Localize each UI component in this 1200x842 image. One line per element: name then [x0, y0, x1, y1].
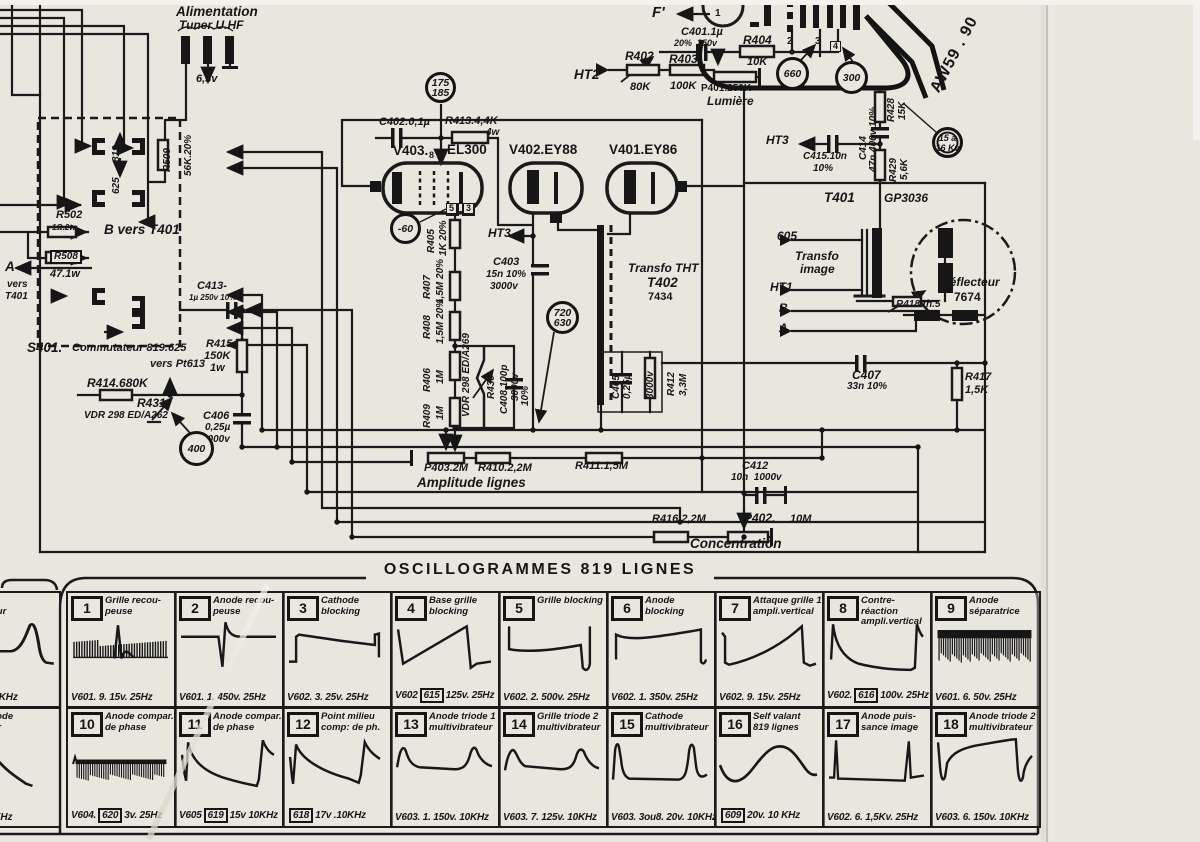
schematic-label: R431: [137, 397, 166, 409]
waveform-trace: [610, 616, 711, 674]
schematic-label: 3000v: [490, 282, 518, 292]
schematic-label: S401.: [27, 341, 62, 355]
schematic-label: 6,3v: [196, 74, 217, 85]
cell-title: Self valant819 lignes: [753, 712, 801, 733]
waveform-trace: [502, 616, 603, 674]
oscillogram-cell: 14Grille triode 2multivibrateurV603. 7. …: [498, 707, 609, 828]
value-circle: 15 à16 Kv: [932, 127, 963, 158]
schematic-vertical-label: R429: [889, 158, 899, 182]
waveform-trace: [826, 732, 927, 790]
schematic-vertical-label: VDR 298 ED/A269: [462, 333, 472, 417]
schematic-label: P401.250K: [701, 84, 751, 94]
schematic-label: F': [652, 5, 665, 20]
schematic-vertical-label: R406: [423, 368, 433, 392]
schematic-label: R402: [625, 50, 654, 62]
schematic-label: HT3: [766, 134, 789, 146]
schematic-vertical-label: R430: [487, 375, 497, 399]
schematic-label: R415: [206, 339, 232, 350]
oscillogram-cell: 8Contre-réactionampli.verticalV602.61610…: [822, 591, 933, 708]
caption-box-number: 616: [854, 688, 878, 703]
schematic-vertical-label: 1,5M 20%: [436, 259, 446, 304]
schematic-label: 20% 250v: [674, 39, 717, 48]
schematic-label: Lumière: [707, 95, 754, 107]
schematic-label: C407: [852, 369, 881, 381]
oscillogram-cell: 6Anode blockingV602. 1. 350v. 25Hz: [606, 591, 717, 708]
schematic-label: T401: [824, 191, 855, 205]
schematic-label: C402.0,1µ: [379, 117, 430, 128]
waveform-trace: [718, 616, 819, 674]
schematic-label: 2: [787, 37, 793, 47]
schematic-label: vers Pt613: [150, 359, 205, 370]
schematic-label: Déflecteur: [941, 276, 1000, 288]
schematic-label: C413-: [197, 281, 227, 292]
schematic-vertical-label: 3000v: [646, 371, 656, 399]
waveform-trace: [394, 616, 495, 674]
schematic-label: B: [779, 302, 788, 314]
schematic-label: R403: [669, 53, 698, 65]
schematic-label: R416.2,2M: [652, 514, 706, 525]
oscillogram-cell: 3CathodeblockingV602. 3. 25v. 25Hz: [282, 591, 393, 708]
cell-title: sion anodeparateur: [0, 712, 13, 733]
schematic-label: 1: [715, 9, 721, 19]
cell-caption: 22v. 10KHz: [0, 812, 12, 823]
schematic-label: 47.1w: [50, 269, 80, 280]
schematic-vertical-label: 1M: [436, 406, 446, 420]
schematic-label: 33n 10%: [847, 382, 887, 392]
waveform-trace: [826, 616, 927, 674]
schematic-label: Transfo: [795, 250, 839, 262]
schematic-label: R404: [743, 34, 772, 46]
caption-box-number: 620: [98, 808, 122, 823]
schematic-label: EL300: [447, 143, 487, 157]
cell-title: Cathodemultivibrateur: [645, 712, 708, 733]
schematic-label: T401: [5, 292, 28, 302]
cell-caption: V602. 9. 15v. 25Hz: [719, 692, 800, 703]
schematic-label: 10n 1000v: [731, 473, 782, 483]
schematic-label: T402: [647, 276, 678, 290]
oscillogram-cell: 11Anode compar.de phaseV60561915v 10KHz: [174, 707, 285, 828]
schematic-vertical-label: 625: [112, 177, 122, 194]
schematic-label: R502: [56, 210, 82, 221]
value-circle: 175185: [425, 72, 456, 103]
schematic-vertical-label: 5,6K: [900, 159, 910, 180]
schematic-vertical-label: 10%: [521, 386, 531, 406]
schematic-label: C401.1µ: [681, 27, 723, 38]
schematic-label: vers: [7, 280, 28, 290]
cell-title: Cathodeblocking: [321, 596, 360, 617]
schematic-label: 10%: [813, 164, 833, 174]
schematic-label: R414.680K: [87, 377, 148, 389]
waveform-trace: [70, 616, 171, 674]
oscillogram-cell: 2Anode recou-peuseV601. 1. 450v. 25Hz: [174, 591, 285, 708]
schematic-vertical-label: R409: [423, 404, 433, 428]
paper-tear-top: [0, 0, 1200, 5]
waveform-trace: [0, 616, 55, 674]
schematic-label: 0,25µ: [205, 423, 230, 433]
schematic-label: P403.2M: [424, 463, 468, 474]
schematic-label: Concentration: [690, 537, 782, 551]
cell-title: Anode recou-peuse: [213, 596, 274, 617]
cell-title: Grille blocking: [537, 596, 603, 607]
schematic-vertical-label: 1M: [436, 370, 446, 384]
schematic-vertical-label: 0,25µ: [623, 374, 633, 399]
schematic-label: 1Ω.2w: [52, 224, 76, 232]
schematic-label: 1µ 250v 10%: [189, 294, 236, 302]
oscillogram-cell: 5Grille blockingV602. 2. 500v. 25Hz: [498, 591, 609, 708]
waveform-trace: [610, 732, 711, 790]
schematic-label: R418 th.5: [896, 300, 940, 310]
oscillogram-cell: 17Anode puis-sance imageV602. 6. 1,5Kv. …: [822, 707, 933, 828]
schematic-label: C406: [203, 411, 229, 422]
schematic-vertical-label: C405: [612, 375, 622, 399]
schematic-label: 80K: [630, 82, 650, 93]
schematic-vertical-label: R428: [887, 98, 897, 122]
cell-title: Grille recou-peuse: [105, 596, 161, 617]
waveform-trace: [70, 732, 171, 790]
value-circle: 720630: [546, 301, 579, 334]
cell-title: Grille triode 2multivibrateur: [537, 712, 600, 733]
schematic-label: Tuner U.HF: [179, 19, 243, 31]
schematic-label: P402.: [744, 512, 775, 524]
caption-box-number: 615: [420, 688, 444, 703]
schematic-label: image: [800, 263, 835, 275]
waveform-trace: [286, 732, 387, 790]
schematic-vertical-label: R408: [423, 315, 433, 339]
cell-caption: V602. 6. 1,5Kv. 25Hz: [827, 812, 918, 823]
schematic-label: C412: [742, 461, 768, 472]
paper-tear-right: [1193, 0, 1200, 140]
schematic-label: Alimentation: [176, 5, 258, 19]
schematic-label: VDR 298 ED/A262: [84, 411, 168, 421]
value-circle: 400: [179, 431, 214, 466]
oscillogram-cell: 18Anode triode 2multivibrateurV603. 6. 1…: [930, 707, 1041, 828]
schematic-vertical-label: R405: [427, 229, 437, 253]
oscillogram-cell: 12Point milieucomp: de ph.61817v .10KHz: [282, 707, 393, 828]
schematic-label: V401.EY86: [609, 143, 677, 157]
schematic-scan: AlimentationTuner U.HF6,3vR5021Ω.2wB ver…: [0, 0, 1200, 842]
schematic-vertical-label: 3,3M: [679, 374, 689, 396]
schematic-label: 4w: [486, 128, 499, 138]
caption-box-number: 619: [204, 808, 228, 823]
waveform-trace: [394, 732, 495, 790]
schematic-label: 3: [815, 37, 821, 47]
schematic-vertical-label: R412: [667, 372, 677, 396]
schematic-label: Amplitude lignes: [417, 476, 526, 490]
schematic-label: 4: [830, 41, 841, 52]
schematic-label: HT3: [488, 227, 511, 239]
schematic-label: 5: [446, 203, 457, 214]
cell-caption: V60561915v 10KHz: [179, 808, 278, 823]
cell-caption: 8.17v.10KHz: [0, 692, 18, 703]
cell-caption: V603. 7. 125v. 10KHz: [503, 812, 597, 823]
cell-caption: 61817v .10KHz: [287, 808, 366, 823]
cell-title: Anode compar.de phase: [105, 712, 174, 733]
schematic-vertical-label: 56K.20%: [184, 135, 194, 176]
cell-caption: V603. 6. 150v. 10KHz: [935, 812, 1029, 823]
oscillogram-cell: 13Anode triode 1multivibrateurV603. 1. 1…: [390, 707, 501, 828]
cell-caption: V601. 9. 15v. 25Hz: [71, 692, 152, 703]
schematic-label: V403.: [393, 144, 428, 158]
schematic-label: 1,5K: [965, 385, 988, 396]
oscillogram-cell: sion anodeparateur22v. 10KHz: [0, 707, 61, 828]
schematic-vertical-label: 1K 20%: [439, 220, 449, 256]
waveform-trace: [718, 732, 819, 790]
caption-box-number: 618: [289, 808, 313, 823]
waveform-trace: [286, 616, 387, 674]
schematic-label: C415.10n: [803, 152, 847, 162]
schematic-label: 1w: [210, 363, 225, 374]
schematic-label: 15n 10%: [486, 270, 526, 280]
schematic-label: 7434: [648, 292, 672, 303]
waveform-trace: [502, 732, 603, 790]
schematic-label: R417: [965, 372, 991, 383]
schematic-label: V402.EY88: [509, 143, 577, 157]
cell-caption: V602. 1. 350v. 25Hz: [611, 692, 698, 703]
schematic-vertical-label: R509: [163, 148, 173, 172]
cell-caption: V602. 3. 25v. 25Hz: [287, 692, 368, 703]
cell-title: Anode compar.de phase: [213, 712, 282, 733]
schematic-label: 605: [777, 230, 797, 242]
schematic-label: R410.2,2M: [478, 463, 532, 474]
waveform-trace: [934, 732, 1035, 790]
schematic-label: 150K: [204, 351, 230, 362]
cell-title: Anode triode 2multivibrateur: [969, 712, 1036, 733]
cell-title: Base grilleblocking: [429, 596, 477, 617]
cell-caption: V602. 2. 500v. 25Hz: [503, 692, 590, 703]
schematic-label: GP3036: [884, 192, 928, 204]
cell-caption: V604.6203v. 25Hz: [71, 808, 162, 823]
cell-title: hodeivibrateur: [0, 596, 6, 617]
cell-caption: V601. 6. 50v. 25Hz: [935, 692, 1016, 703]
oscillogram-cell: 15CathodemultivibrateurV603. 3ou8. 20v. …: [606, 707, 717, 828]
cell-title: Anode blocking: [645, 596, 715, 617]
cell-caption: V601. 1. 450v. 25Hz: [179, 692, 266, 703]
schematic-label: 8: [429, 151, 434, 160]
value-circle: 660: [776, 57, 809, 90]
cell-title: Anodeséparatrice: [969, 596, 1020, 617]
cell-title: Point milieucomp: de ph.: [321, 712, 380, 733]
cell-caption: V602.616100v. 25Hz: [827, 688, 929, 703]
schematic-label: 100K: [670, 81, 696, 92]
oscillograms-title: OSCILLOGRAMMES 819 LIGNES: [330, 561, 750, 579]
oscillogram-cell: 1Grille recou-peuseV601. 9. 15v. 25Hz: [66, 591, 177, 708]
schematic-label: 7674: [954, 291, 981, 303]
schematic-vertical-label: R407: [423, 275, 433, 299]
value-circle: 300: [835, 61, 868, 94]
schematic-label: 10M: [790, 514, 811, 525]
oscillogram-cell: 4Base grilleblockingV602615125v. 25Hz: [390, 591, 501, 708]
schematic-label: A: [5, 260, 15, 274]
schematic-label: 3: [463, 203, 474, 214]
schematic-vertical-label: C408.100p: [500, 365, 510, 414]
schematic-label: 10K: [747, 57, 767, 68]
schematic-label: C403: [493, 257, 519, 268]
cell-caption: 60920v. 10 KHz: [719, 808, 800, 823]
waveform-trace: [934, 616, 1035, 674]
schematic-label: Transfo THT: [628, 262, 698, 274]
schematic-label: A: [779, 322, 788, 334]
schematic-label: Commutateur 819.625: [72, 343, 186, 354]
schematic-vertical-label: 1,5M 20%: [436, 299, 446, 344]
caption-box-number: 609: [721, 808, 745, 823]
schematic-label: R508: [50, 250, 82, 264]
cell-caption: V602615125v. 25Hz: [395, 688, 494, 703]
cell-caption: V603. 1. 150v. 10KHz: [395, 812, 489, 823]
schematic-vertical-label: 47n 400v 10%: [869, 107, 879, 172]
cell-title: Attaque grille 1ampli.vertical: [753, 596, 822, 617]
oscillogram-cell: 16Self valant819 lignes60920v. 10 KHz: [714, 707, 825, 828]
cell-title: Anode puis-sance image: [861, 712, 918, 733]
schematic-label: B vers T401: [104, 223, 180, 237]
schematic-label: R413.4,4K: [445, 116, 498, 127]
schematic-label: HT2: [574, 68, 600, 82]
value-circle: -60: [390, 213, 421, 244]
oscillogram-cell: 9AnodeséparatriceV601. 6. 50v. 25Hz: [930, 591, 1041, 708]
schematic-label: HT1: [770, 281, 793, 293]
schematic-label: R411.1,5M: [575, 461, 628, 472]
schematic-vertical-label: 819: [112, 145, 122, 162]
paper-fold-line: [1046, 0, 1048, 842]
oscillogram-cell: 7Attaque grille 1ampli.verticalV602. 9. …: [714, 591, 825, 708]
cell-caption: V603. 3ou8. 20v. 10KHz: [611, 812, 717, 823]
cell-title: Anode triode 1multivibrateur: [429, 712, 496, 733]
waveform-trace: [0, 732, 55, 790]
oscillogram-cell: hodeivibrateur8.17v.10KHz: [0, 591, 61, 708]
schematic-vertical-label: 15K: [898, 102, 908, 120]
